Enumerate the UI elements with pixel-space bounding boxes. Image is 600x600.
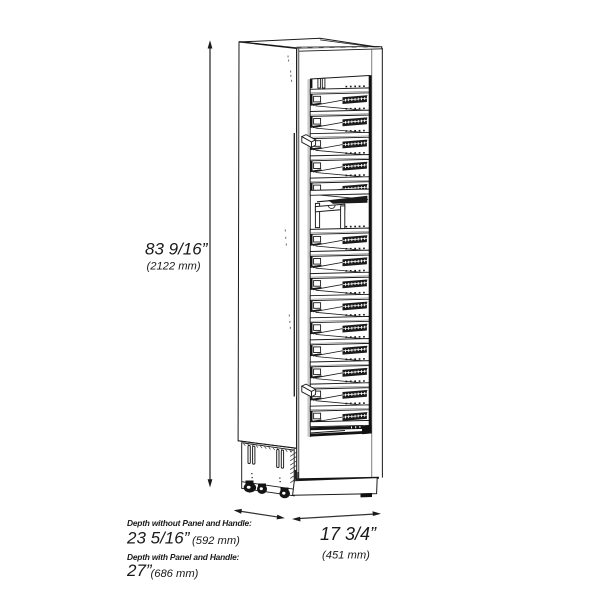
svg-text:17 3/4”: 17 3/4” xyxy=(320,524,377,544)
svg-text:(686 mm): (686 mm) xyxy=(151,568,199,580)
svg-text:23 5/16”: 23 5/16” xyxy=(126,529,191,548)
svg-text:Depth without Panel and Handle: Depth without Panel and Handle: xyxy=(127,518,252,528)
svg-text:(451 mm): (451 mm) xyxy=(322,550,370,562)
svg-text:83 9/16”: 83 9/16” xyxy=(145,240,209,259)
svg-text:(2122 mm): (2122 mm) xyxy=(147,261,201,273)
svg-text:(592 mm): (592 mm) xyxy=(192,535,240,547)
svg-text:27”: 27” xyxy=(126,561,153,580)
